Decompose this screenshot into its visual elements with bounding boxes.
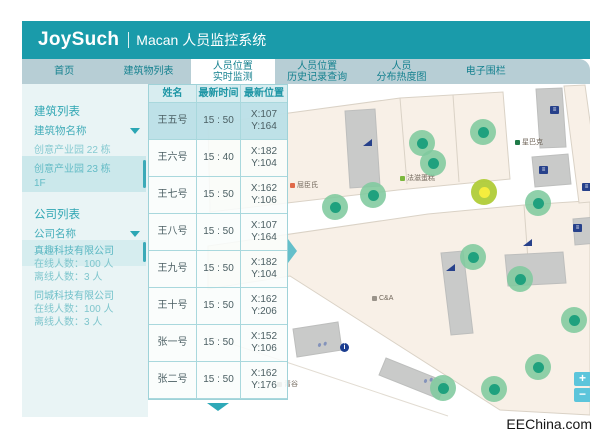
cell-position: X:182 Y:104 (241, 140, 287, 177)
building-item-label: 创意产业园 23 栋 (34, 160, 158, 175)
tab-label: 电子围栏 (466, 66, 506, 77)
table-row[interactable]: 张一号 15 : 50 X:152 Y:106 (149, 325, 287, 362)
pos-y: Y:104 (251, 269, 277, 281)
offline-count: 离线人数：3 人 (34, 268, 140, 283)
tab-building-list[interactable]: 建筑物列表 (106, 59, 190, 84)
cell-time: 15 : 40 (197, 140, 241, 177)
table-row[interactable]: 张二号 15 : 50 X:162 Y:176 (149, 362, 287, 399)
escalator-icon: ≡ (550, 106, 559, 114)
escalator-icon: ≡ (539, 166, 548, 174)
floorplan-structure (532, 154, 571, 187)
person-marker-dot (478, 127, 489, 138)
personnel-table: 姓名 最新时间 最新位置 王五号 15 : 50 X:107 Y:164 王六号… (148, 84, 288, 411)
person-marker-dot (533, 362, 544, 373)
person-marker[interactable] (525, 354, 551, 380)
building-list-title: 建筑列表 (34, 103, 140, 119)
pos-y: Y:206 (251, 306, 277, 318)
pos-y: Y:104 (251, 158, 277, 170)
cell-position: X:162 Y:176 (241, 362, 287, 399)
tab-label: 历史记录查询 (287, 72, 347, 83)
cell-name: 王九号 (149, 251, 197, 288)
person-marker-dot (368, 190, 379, 201)
table-row[interactable]: 王七号 15 : 50 X:162 Y:106 (149, 177, 287, 214)
cell-position: X:152 Y:106 (241, 325, 287, 362)
store-logo-icon (372, 296, 377, 301)
person-marker[interactable] (470, 119, 496, 145)
header: JoySuch Macan 人员监控系统 (22, 21, 590, 59)
tab-label: 人员 (391, 61, 411, 72)
chevron-down-icon[interactable] (130, 128, 140, 134)
chevron-down-icon[interactable] (130, 231, 140, 237)
table-row[interactable]: 王八号 15 : 50 X:107 Y:164 (149, 214, 287, 251)
pos-x: X:162 (251, 183, 277, 195)
store-label-text: 星巴克 (522, 137, 543, 147)
person-marker-dot (533, 198, 544, 209)
person-marker[interactable] (322, 194, 348, 220)
cell-position: X:182 Y:104 (241, 251, 287, 288)
tab-label: 人员位置 (297, 61, 337, 72)
tab-label: 人员位置 (213, 61, 253, 72)
person-marker-dot (468, 252, 479, 263)
tab-realtime-monitor[interactable]: 人员位置 实时监测 (191, 59, 275, 84)
cell-time: 15 : 50 (197, 362, 241, 399)
escalator-icon: ≡ (573, 224, 582, 232)
pos-y: Y:164 (251, 121, 277, 133)
cell-time: 15 : 50 (197, 325, 241, 362)
person-marker[interactable] (460, 244, 486, 270)
pos-y: Y:106 (251, 195, 277, 207)
company-list-title: 公司列表 (34, 206, 140, 222)
table-row[interactable]: 王十号 15 : 50 X:162 Y:206 (149, 288, 287, 325)
person-marker[interactable] (507, 266, 533, 292)
cell-time: 15 : 50 (197, 177, 241, 214)
app-window: JoySuch Macan 人员监控系统 首页 建筑物列表 人员位置 实时监测 … (22, 21, 590, 417)
cell-name: 王十号 (149, 288, 197, 325)
cell-time: 15 : 50 (197, 103, 241, 140)
person-marker-dot (479, 187, 490, 198)
ramp-icon (363, 139, 372, 146)
store-logo-icon (515, 140, 520, 145)
cell-position: X:162 Y:106 (241, 177, 287, 214)
person-marker-dot (438, 383, 449, 394)
brand-logo: JoySuch (38, 29, 119, 51)
cell-position: X:107 Y:164 (241, 214, 287, 251)
tab-heatmap[interactable]: 人员 分布热度图 (359, 59, 443, 84)
scrollbar-thumb[interactable] (143, 160, 146, 188)
tab-label: 首页 (54, 66, 74, 77)
store-logo-icon (400, 176, 405, 181)
tab-bar: 首页 建筑物列表 人员位置 实时监测 人员位置 历史记录查询 人员 分布热度图 … (22, 59, 590, 84)
watermark: EEChina.com (506, 416, 592, 432)
pos-x: X:162 (251, 294, 277, 306)
person-marker-dot (569, 315, 580, 326)
tab-label: 建筑物列表 (123, 66, 173, 77)
tab-e-fence[interactable]: 电子围栏 (444, 59, 528, 84)
info-icon: i (340, 343, 349, 352)
col-time: 最新时间 (197, 85, 241, 103)
floorplan-structure (345, 109, 380, 188)
zoom-in-button[interactable]: + (574, 372, 590, 386)
person-marker-dot (489, 384, 500, 395)
pos-x: X:182 (251, 257, 277, 269)
cell-name: 张二号 (149, 362, 197, 399)
person-marker[interactable] (420, 150, 446, 176)
store-label-text: C&A (379, 295, 393, 302)
table-header: 姓名 最新时间 最新位置 (149, 85, 287, 103)
app-title: Macan 人员监控系统 (136, 30, 266, 50)
person-marker[interactable] (481, 376, 507, 402)
store-logo-icon (290, 183, 295, 188)
content-area: 建筑列表 建筑物名称 创意产业园 22 栋 创意产业园 23 栋 1F 公司列表… (22, 84, 590, 417)
zoom-out-button[interactable]: − (574, 388, 590, 402)
ramp-icon (523, 239, 532, 246)
building-filter-label: 建筑物名称 (34, 123, 87, 138)
pos-x: X:152 (251, 331, 277, 343)
header-divider (128, 32, 129, 48)
floor-label: 1F (34, 178, 158, 189)
person-marker-dot (428, 158, 439, 169)
pos-x: X:107 (251, 109, 277, 121)
cell-name: 张一号 (149, 325, 197, 362)
cell-time: 15 : 50 (197, 214, 241, 251)
table-row[interactable]: 王五号 15 : 50 X:107 Y:164 (149, 103, 287, 140)
pos-y: Y:164 (251, 232, 277, 244)
person-marker-dot (417, 138, 428, 149)
table-scroll-down-icon[interactable] (207, 403, 229, 411)
col-position: 最新位置 (241, 85, 287, 103)
pos-x: X:162 (251, 368, 277, 380)
store-label-starbucks: 星巴克 (515, 137, 543, 147)
tab-home[interactable]: 首页 (22, 59, 106, 84)
table-row[interactable]: 王九号 15 : 50 X:182 Y:104 (149, 251, 287, 288)
store-label-c-and-a: C&A (372, 295, 393, 302)
tab-label: 分布热度图 (376, 72, 426, 83)
person-marker[interactable] (525, 190, 551, 216)
person-marker[interactable] (360, 182, 386, 208)
person-marker-dot (330, 202, 341, 213)
company-filter-label: 公司名称 (34, 226, 76, 241)
cell-time: 15 : 50 (197, 251, 241, 288)
cell-time: 15 : 50 (197, 288, 241, 325)
building-item-selected[interactable]: 创意产业园 23 栋 1F (22, 156, 146, 192)
ramp-icon (446, 264, 455, 271)
person-marker[interactable] (430, 375, 456, 401)
pos-x: X:107 (251, 220, 277, 232)
cell-name: 王五号 (149, 103, 197, 140)
tab-label: 实时监测 (213, 72, 253, 83)
company-name-filter[interactable]: 公司名称 (34, 226, 140, 241)
escalator-icon: ≡ (582, 183, 590, 191)
pos-x: X:182 (251, 146, 277, 158)
col-name: 姓名 (149, 85, 197, 103)
person-marker-dot (515, 274, 526, 285)
table-row[interactable]: 王六号 15 : 40 X:182 Y:104 (149, 140, 287, 177)
offline-count: 离线人数：3 人 (34, 313, 140, 328)
tab-history-query[interactable]: 人员位置 历史记录查询 (275, 59, 359, 84)
store-label-watsons: 屈臣氏 (290, 180, 318, 190)
cell-position: X:162 Y:206 (241, 288, 287, 325)
building-name-filter[interactable]: 建筑物名称 (34, 123, 140, 138)
pos-y: Y:176 (251, 380, 277, 392)
scrollbar-thumb[interactable] (143, 242, 146, 262)
sidebar: 建筑列表 建筑物名称 创意产业园 22 栋 创意产业园 23 栋 1F 公司列表… (22, 84, 148, 417)
person-marker[interactable] (561, 307, 587, 333)
store-label-text: 屈臣氏 (297, 180, 318, 190)
building-item[interactable]: 创意产业园 22 栋 (34, 141, 140, 156)
pos-y: Y:106 (251, 343, 277, 355)
floorplan-structure (293, 322, 342, 357)
cell-position: X:107 Y:164 (241, 103, 287, 140)
cell-name: 王八号 (149, 214, 197, 251)
selected-person-marker[interactable] (471, 179, 497, 205)
